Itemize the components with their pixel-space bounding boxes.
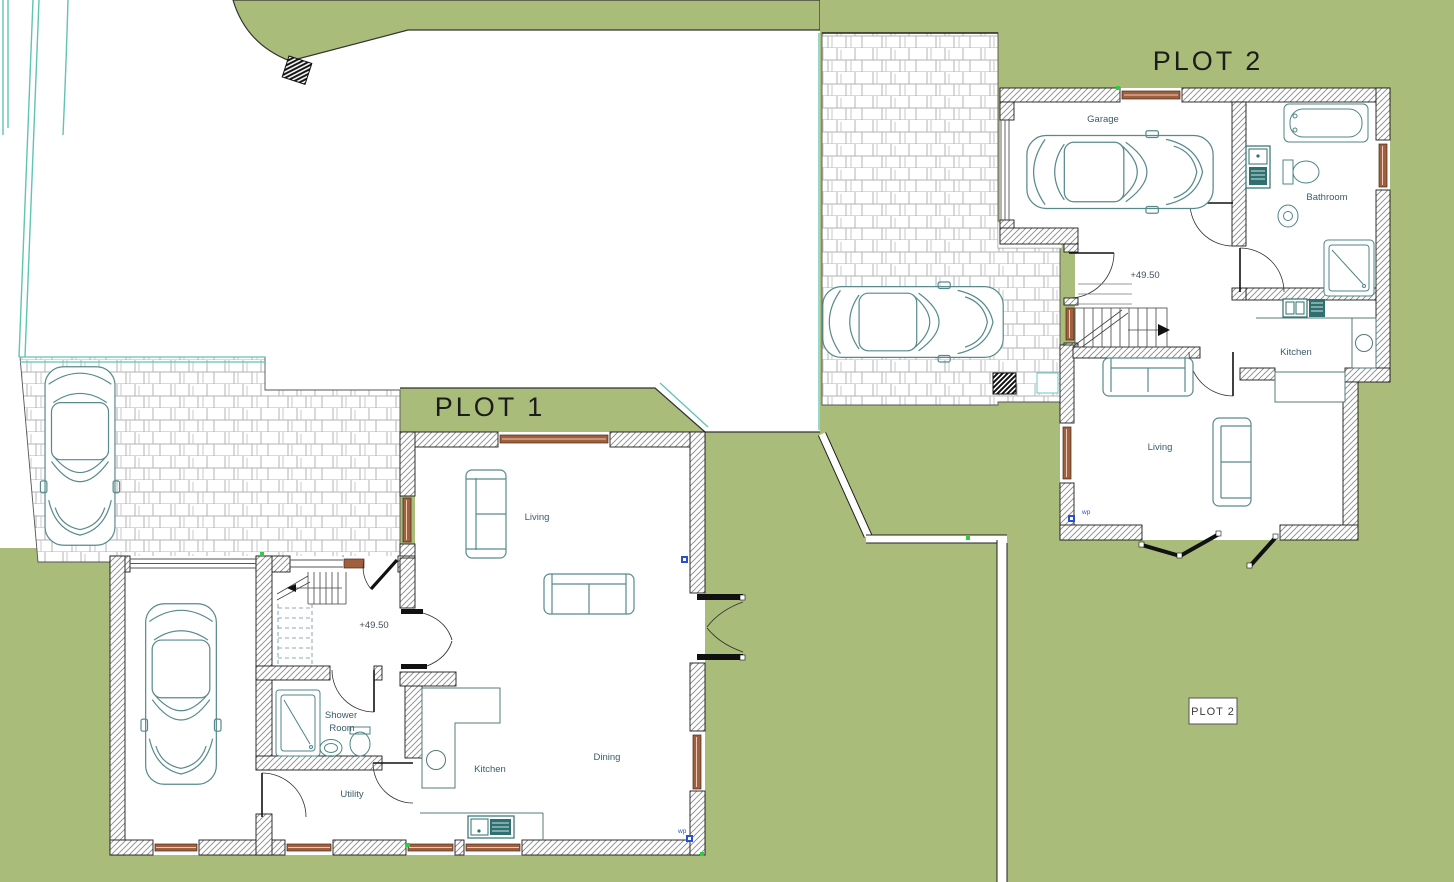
label-utility: Utility [340, 789, 363, 800]
label-plot1-wp: wp [677, 828, 687, 835]
plot2-title: PLOT 2 [1153, 46, 1264, 76]
label-plot2-wp: wp [1081, 509, 1091, 516]
car-garage-plot1 [141, 604, 221, 784]
label-bathroom: Bathroom [1306, 192, 1347, 203]
site-plan-canvas: Living +49.50 Shower Room Utility Kitche… [0, 0, 1454, 882]
utility-sink-unit [1246, 146, 1270, 188]
car-driveway-plot1 [40, 367, 119, 545]
label-shower-line1: Shower [325, 710, 357, 721]
car-garage-plot2 [1027, 131, 1213, 214]
survey-hatch-marker-driveway [993, 373, 1016, 394]
label-plot1-living: Living [525, 512, 550, 523]
label-plot2-kitchen: Kitchen [1280, 347, 1312, 358]
plot2-box-label: PLOT 2 [1191, 706, 1235, 718]
label-shower-line2: Room [329, 723, 354, 734]
label-plot2-level: +49.50 [1130, 270, 1159, 281]
plot2-label-box: PLOT 2 [1189, 698, 1237, 724]
label-plot2-living: Living [1148, 442, 1173, 453]
gully-marker [1037, 373, 1058, 393]
window-hall-front [344, 559, 364, 568]
car-driveway-plot2 [823, 282, 1003, 362]
label-plot1-kitchen: Kitchen [474, 764, 506, 775]
label-garage: Garage [1087, 114, 1119, 125]
site-plan-drawing: Living +49.50 Shower Room Utility Kitche… [0, 0, 1454, 882]
label-plot1-level: +49.50 [359, 620, 388, 631]
plot1-title: PLOT 1 [435, 392, 546, 422]
kitchen-sink-plot1 [468, 816, 514, 838]
label-dining: Dining [594, 752, 621, 763]
